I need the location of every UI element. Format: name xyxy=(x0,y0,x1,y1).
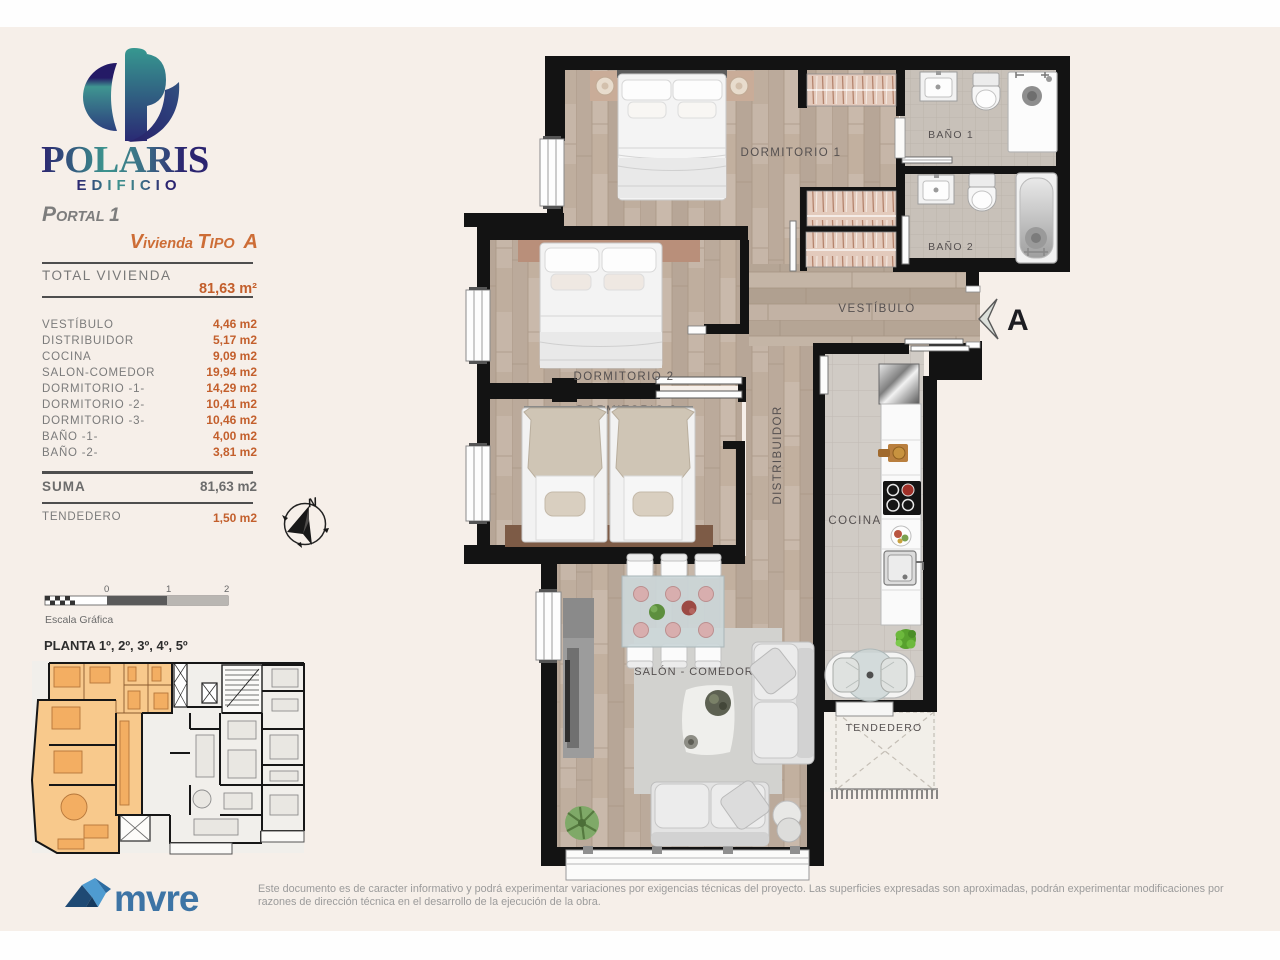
svg-text:BAÑO 1: BAÑO 1 xyxy=(928,128,974,141)
svg-text:DORMITORIO 2: DORMITORIO 2 xyxy=(574,371,675,383)
svg-text:SALÓN - COMEDOR: SALÓN - COMEDOR xyxy=(634,665,754,678)
svg-text:COCINA: COCINA xyxy=(828,515,881,527)
svg-text:DORMITORIO 1: DORMITORIO 1 xyxy=(741,147,842,159)
svg-text:BAÑO 2: BAÑO 2 xyxy=(928,240,974,253)
svg-text:DISTRIBUIDOR: DISTRIBUIDOR xyxy=(772,405,784,504)
svg-text:TENDEDERO: TENDEDERO xyxy=(846,722,923,734)
svg-text:VESTÍBULO: VESTÍBULO xyxy=(838,302,915,315)
svg-text:A: A xyxy=(1007,304,1029,337)
